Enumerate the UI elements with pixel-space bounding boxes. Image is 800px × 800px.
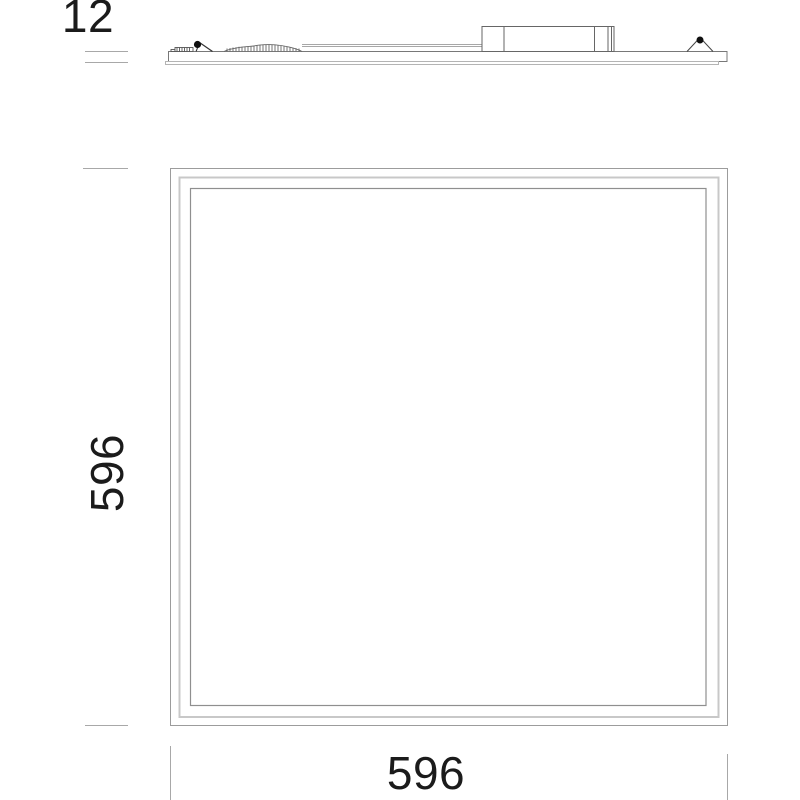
panel-outer-frame: [171, 169, 728, 726]
driver-box: [482, 27, 614, 52]
side-profile-view: [166, 27, 728, 65]
dimension-height-label: 596: [82, 398, 134, 548]
panel-middle-frame: [180, 178, 719, 718]
flex-conduit: [224, 45, 302, 52]
dimension-thickness-label: 12: [56, 0, 120, 42]
left-spring-clip: [194, 41, 213, 52]
left-mounting-bracket: [171, 48, 193, 52]
technical-drawing-page: 12 596 596: [0, 0, 800, 800]
driver-wire: [302, 45, 482, 47]
panel-profile-body: [166, 52, 728, 65]
dimension-width-label: 596: [351, 748, 501, 799]
panel-inner-frame: [191, 189, 707, 706]
right-spring-clip: [687, 37, 713, 52]
front-view: [171, 169, 728, 726]
